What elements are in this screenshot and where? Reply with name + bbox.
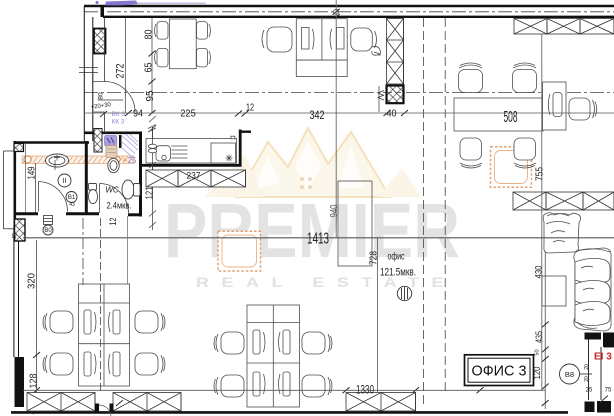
svg-text:ОФИС 3: ОФИС 3 [472, 363, 527, 380]
svg-text:508: 508 [504, 109, 518, 126]
svg-text:25: 25 [586, 388, 593, 394]
svg-text:320: 320 [26, 273, 38, 289]
svg-text:20: 20 [584, 376, 590, 382]
svg-text:94: 94 [133, 109, 143, 120]
svg-text:940: 940 [328, 204, 340, 217]
svg-text:149: 149 [27, 166, 38, 179]
svg-text:2.4мкв.: 2.4мкв. [107, 201, 132, 211]
svg-text:45: 45 [13, 232, 19, 239]
svg-text:121: 121 [145, 186, 156, 199]
svg-text:25: 25 [128, 156, 137, 165]
svg-text:12: 12 [108, 218, 118, 226]
svg-text:В0: В0 [44, 228, 52, 234]
svg-text:75: 75 [605, 388, 612, 394]
svg-text:342: 342 [310, 108, 325, 122]
svg-text:II: II [63, 178, 67, 185]
svg-text:офис: офис [388, 251, 405, 263]
svg-text:40: 40 [387, 109, 397, 120]
svg-text:12: 12 [246, 103, 254, 114]
svg-text:128: 128 [28, 373, 40, 388]
svg-text:80: 80 [98, 92, 105, 100]
svg-text:225: 225 [180, 108, 196, 120]
svg-text:ВК 3: ВК 3 [112, 111, 126, 118]
svg-text:43: 43 [69, 202, 75, 208]
svg-text:728: 728 [368, 251, 380, 265]
svg-text:В1: В1 [68, 195, 76, 201]
svg-text:50: 50 [535, 349, 541, 355]
svg-text:237: 237 [187, 171, 201, 182]
svg-text:65: 65 [144, 62, 155, 72]
svg-text:1330: 1330 [356, 385, 374, 397]
svg-text:430: 430 [534, 266, 545, 279]
svg-text:272: 272 [115, 64, 127, 79]
svg-text:WC: WC [105, 186, 119, 195]
svg-text:95: 95 [145, 90, 156, 101]
svg-text:80: 80 [144, 29, 155, 39]
svg-text:В8: В8 [565, 370, 574, 379]
svg-text:20: 20 [584, 364, 590, 370]
svg-text:1413: 1413 [307, 231, 329, 248]
svg-text:КК 3: КК 3 [112, 119, 125, 126]
svg-text:755: 755 [534, 167, 546, 181]
svg-text:ЕІ 3: ЕІ 3 [594, 352, 612, 363]
svg-text:121.5мкв.: 121.5мкв. [380, 267, 416, 279]
svg-text:435: 435 [534, 331, 545, 343]
svg-text:REAL ESTATE: REAL ESTATE [196, 274, 456, 290]
